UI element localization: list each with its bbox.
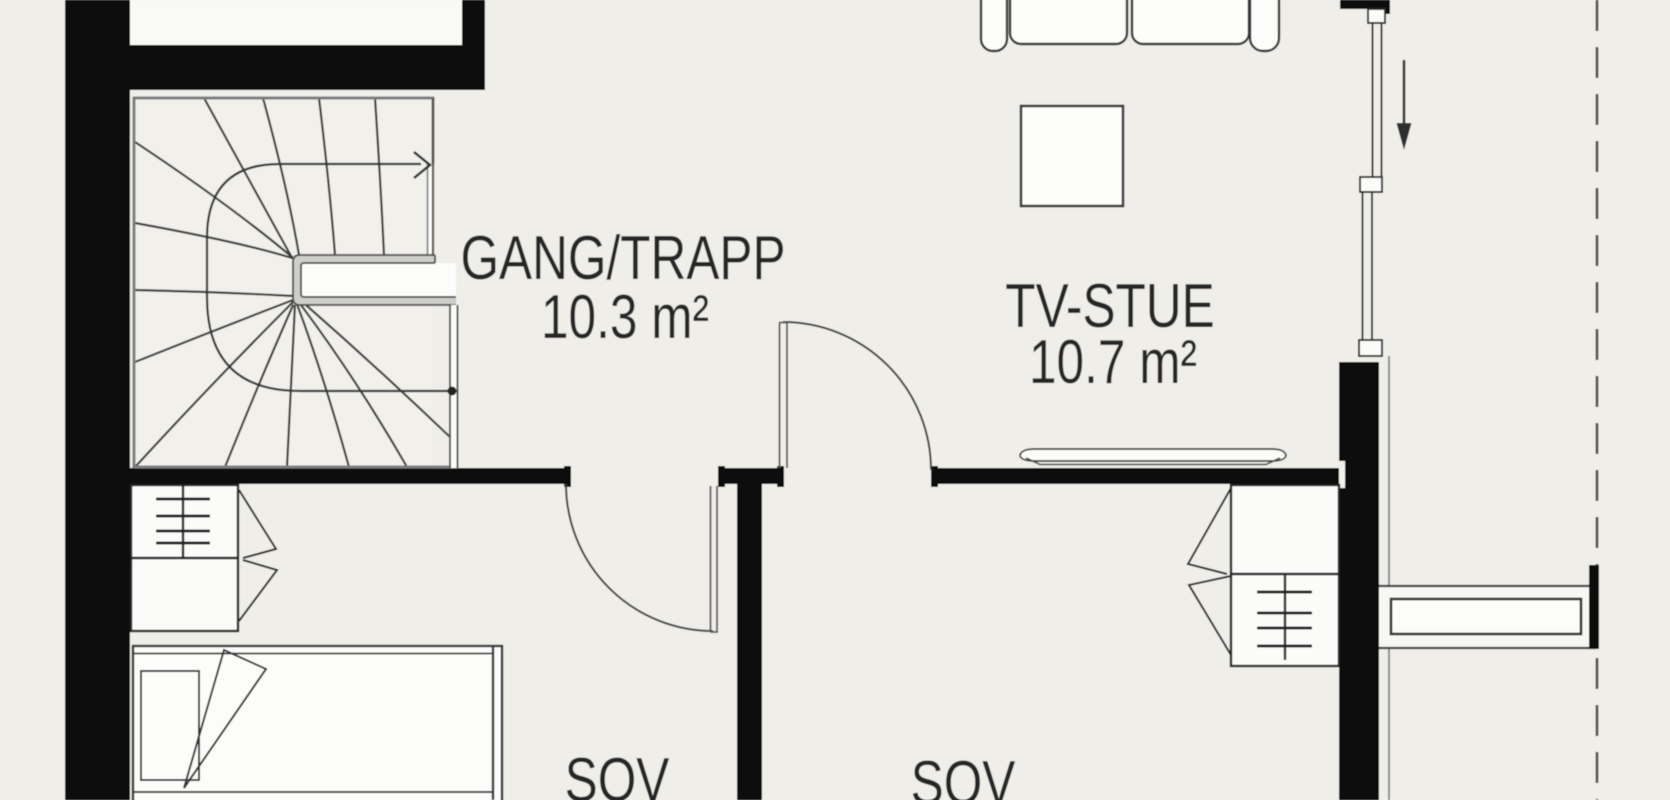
svg-text:SOV: SOV: [911, 748, 1016, 800]
svg-text:SOV: SOV: [565, 745, 670, 800]
svg-text:10.7 m²: 10.7 m²: [1029, 327, 1197, 397]
svg-text:10.3 m²: 10.3 m²: [541, 282, 709, 352]
